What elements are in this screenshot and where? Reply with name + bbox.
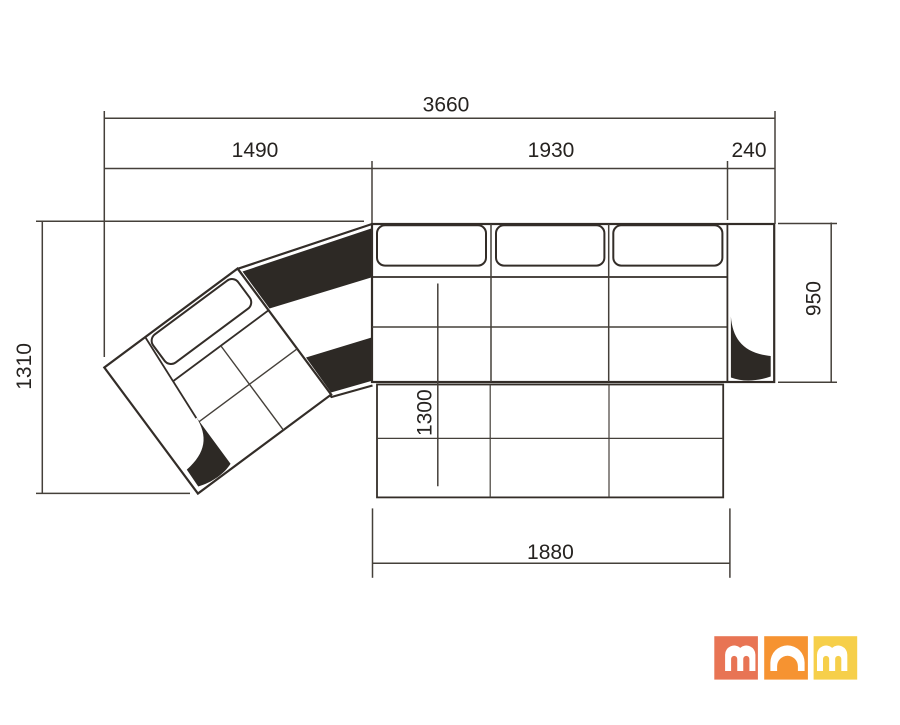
svg-text:240: 240 <box>731 139 766 162</box>
svg-text:950: 950 <box>803 281 826 316</box>
svg-text:3660: 3660 <box>423 94 470 117</box>
svg-text:1310: 1310 <box>13 343 36 390</box>
svg-text:1490: 1490 <box>232 139 279 162</box>
svg-text:1880: 1880 <box>527 541 574 564</box>
svg-text:1300: 1300 <box>414 389 437 436</box>
svg-text:1930: 1930 <box>528 139 575 162</box>
